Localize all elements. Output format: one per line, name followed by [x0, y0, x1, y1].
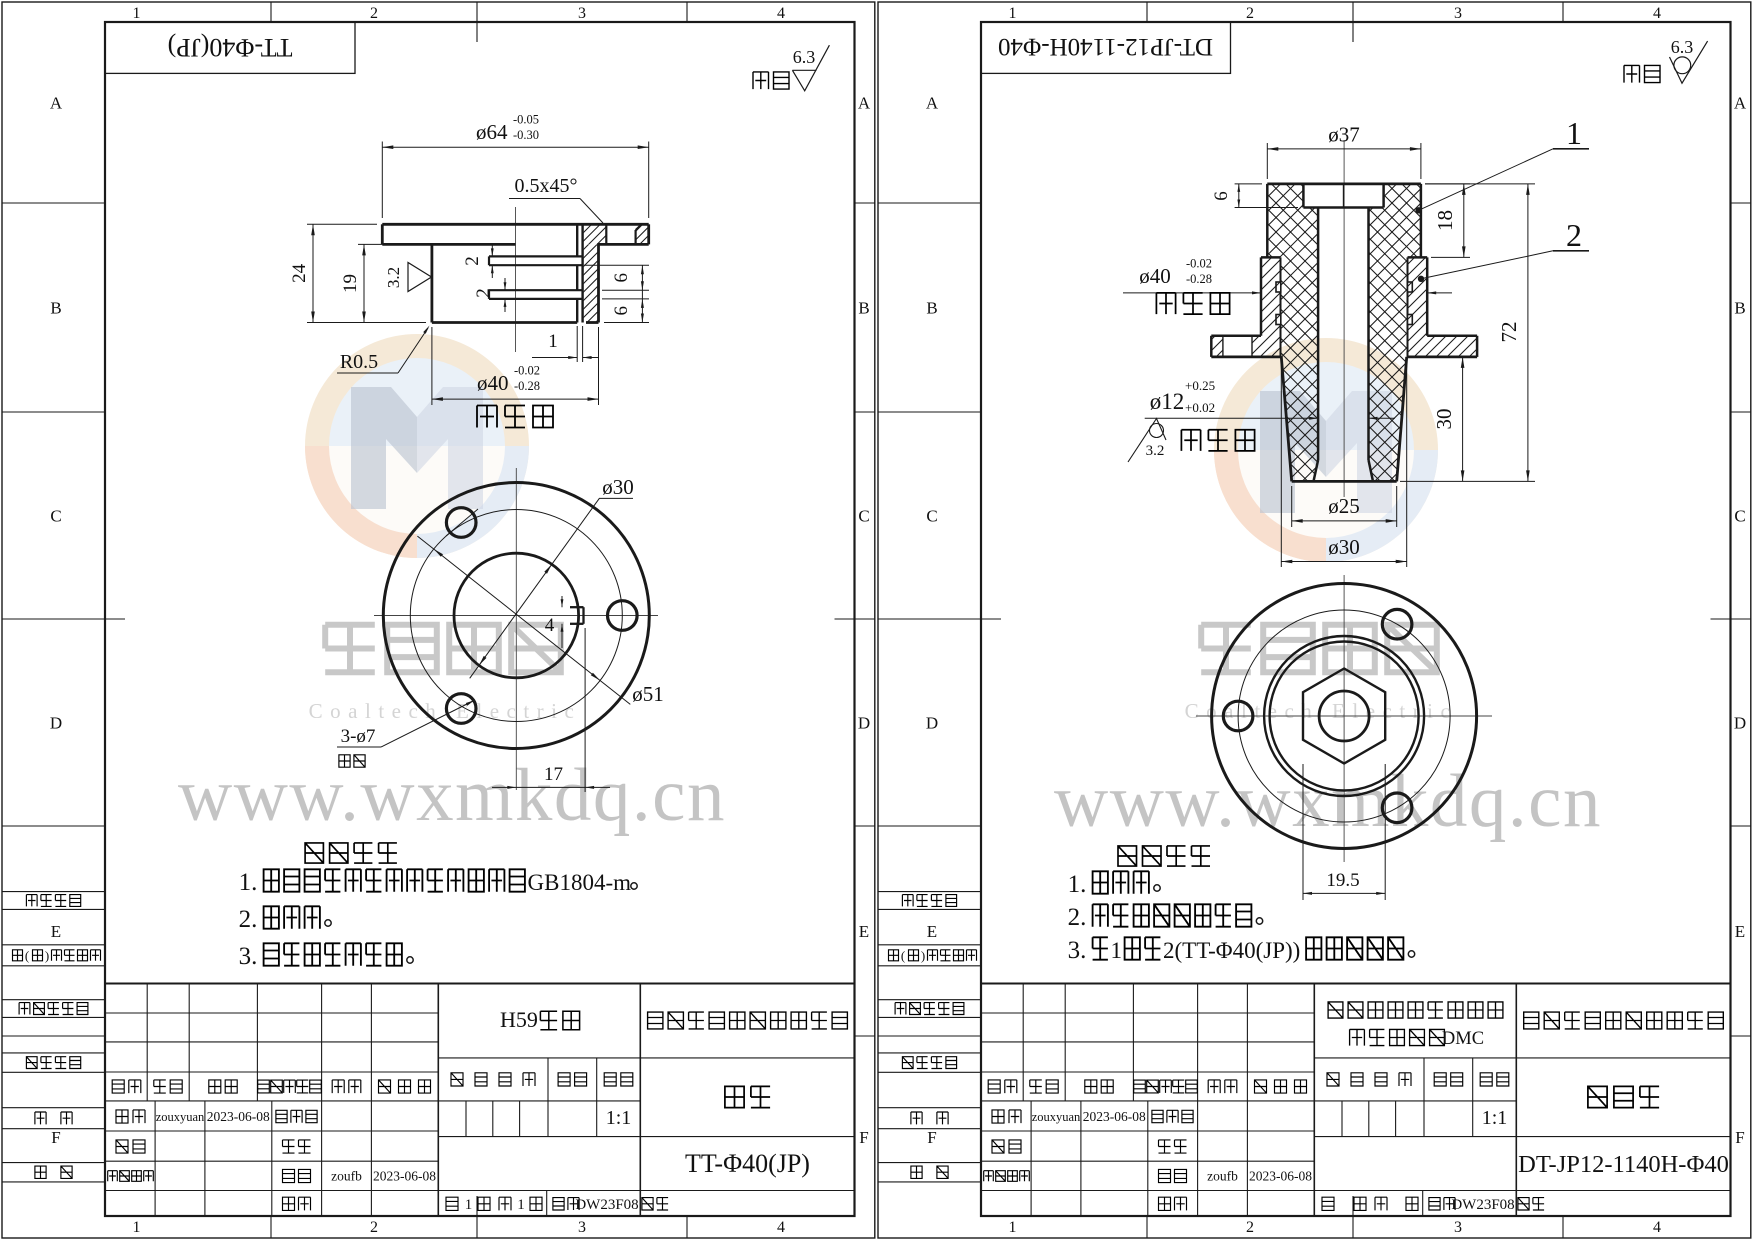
svg-text:1: 1 [1009, 5, 1017, 22]
svg-text:E: E [859, 922, 869, 941]
svg-text:ø30: ø30 [1328, 535, 1360, 559]
svg-text:zoufb: zoufb [1207, 1169, 1238, 1184]
svg-text:6.3: 6.3 [793, 47, 816, 67]
svg-text:19.5: 19.5 [1326, 870, 1359, 891]
svg-text:B: B [50, 299, 61, 318]
svg-text:): ) [921, 948, 925, 963]
svg-text:1: 1 [1009, 1219, 1017, 1236]
svg-text:C: C [1734, 507, 1745, 526]
svg-text:19: 19 [340, 274, 361, 293]
svg-text:(: ( [25, 948, 29, 963]
svg-text:+0.25: +0.25 [1185, 378, 1215, 393]
svg-text:4: 4 [1653, 1219, 1661, 1236]
svg-text:3.2: 3.2 [384, 267, 403, 288]
svg-text:1: 1 [1111, 938, 1123, 963]
svg-text:F: F [1735, 1128, 1744, 1147]
svg-text:6: 6 [611, 273, 632, 283]
svg-text:2023-06-08: 2023-06-08 [207, 1109, 270, 1124]
svg-text:17: 17 [544, 764, 563, 785]
svg-text:2023-06-08: 2023-06-08 [1249, 1169, 1312, 1184]
svg-text:1:1: 1:1 [606, 1107, 632, 1129]
svg-text:4: 4 [545, 615, 555, 636]
svg-text:R0.5: R0.5 [340, 351, 378, 373]
svg-text:DW23F08: DW23F08 [575, 1197, 638, 1213]
svg-text:-0.28: -0.28 [514, 379, 540, 393]
svg-text:+0.02: +0.02 [1185, 400, 1215, 415]
svg-text:ø51: ø51 [632, 682, 664, 706]
svg-text:A: A [858, 94, 871, 113]
svg-text:4: 4 [777, 5, 785, 22]
svg-text:1.: 1. [239, 869, 258, 896]
svg-text:C: C [858, 507, 869, 526]
svg-text:D: D [1734, 714, 1746, 733]
svg-text:F: F [927, 1128, 936, 1147]
svg-text:2023-06-08: 2023-06-08 [1083, 1109, 1146, 1124]
svg-text:18: 18 [1433, 210, 1457, 231]
svg-text:2: 2 [1566, 217, 1582, 253]
svg-text:A: A [926, 94, 939, 113]
svg-text:E: E [927, 922, 937, 941]
svg-text:C: C [926, 507, 937, 526]
svg-text:2: 2 [462, 256, 483, 266]
svg-text:6: 6 [611, 306, 632, 316]
svg-text:4: 4 [1653, 5, 1661, 22]
svg-text:-0.02: -0.02 [514, 364, 540, 378]
svg-text:1: 1 [1566, 115, 1582, 151]
svg-text:D: D [50, 714, 62, 733]
svg-text:1: 1 [465, 1197, 473, 1213]
svg-text:DW23F08: DW23F08 [1451, 1197, 1514, 1213]
svg-text:): ) [45, 948, 49, 963]
svg-text:B: B [926, 299, 937, 318]
svg-text:D: D [858, 714, 870, 733]
svg-text:GB1804-m: GB1804-m [528, 870, 632, 895]
svg-text:ø12: ø12 [1150, 389, 1185, 414]
svg-text:2023-06-08: 2023-06-08 [373, 1169, 436, 1184]
svg-text:(: ( [901, 948, 905, 963]
svg-text:H59: H59 [500, 1007, 538, 1032]
svg-text:1: 1 [133, 5, 141, 22]
svg-text:D: D [926, 714, 938, 733]
svg-text:E: E [51, 922, 61, 941]
svg-text:www.wxmkdq.cn: www.wxmkdq.cn [178, 754, 726, 837]
svg-text:ø30: ø30 [602, 475, 634, 499]
svg-text:DMC: DMC [1442, 1029, 1484, 1049]
svg-text:3: 3 [578, 1219, 586, 1236]
svg-text:A: A [50, 94, 63, 113]
svg-text:1.: 1. [1068, 871, 1087, 898]
svg-text:1: 1 [133, 1219, 141, 1236]
svg-text:A: A [1734, 94, 1747, 113]
svg-text:ø40: ø40 [477, 371, 509, 395]
svg-text:3: 3 [1454, 1219, 1462, 1236]
svg-text:ø25: ø25 [1328, 494, 1360, 518]
svg-text:F: F [859, 1128, 868, 1147]
svg-text:3.: 3. [239, 943, 258, 970]
svg-text:TT-Φ40(JP): TT-Φ40(JP) [685, 1149, 810, 1178]
svg-text:-0.28: -0.28 [1186, 272, 1212, 286]
svg-text:TT-Φ40(JP): TT-Φ40(JP) [168, 33, 293, 62]
svg-text:6: 6 [1211, 191, 1232, 201]
svg-text:2: 2 [370, 5, 378, 22]
svg-text:-0.30: -0.30 [513, 128, 539, 142]
svg-text:72: 72 [1497, 322, 1521, 343]
svg-text:DT-JP12-1140H-Φ40: DT-JP12-1140H-Φ40 [998, 33, 1213, 60]
svg-text:1:1: 1:1 [1482, 1107, 1508, 1129]
svg-text:3-ø7: 3-ø7 [341, 726, 376, 747]
svg-text:4: 4 [777, 1219, 785, 1236]
svg-text:2.: 2. [239, 906, 258, 933]
svg-text:www.wxmkdq.cn: www.wxmkdq.cn [1054, 760, 1602, 843]
svg-text:zouxyuan: zouxyuan [1032, 1110, 1081, 1124]
svg-text:0.5x45°: 0.5x45° [515, 175, 578, 197]
svg-text:C: C [50, 507, 61, 526]
svg-text:2: 2 [473, 288, 494, 298]
svg-text:24: 24 [289, 263, 310, 283]
svg-text:30: 30 [1432, 409, 1456, 430]
svg-text:E: E [1735, 922, 1745, 941]
svg-text:zouxyuan: zouxyuan [156, 1110, 205, 1124]
svg-text:3: 3 [1454, 5, 1462, 22]
svg-text:ø64: ø64 [476, 120, 508, 144]
svg-text:3.: 3. [1068, 937, 1087, 964]
svg-text:2.: 2. [1068, 904, 1087, 931]
svg-text:6.3: 6.3 [1671, 37, 1694, 57]
svg-text:ø37: ø37 [1328, 123, 1360, 147]
svg-text:ø40: ø40 [1139, 264, 1171, 288]
svg-text:2(TT-Φ40(JP)): 2(TT-Φ40(JP)) [1163, 938, 1300, 963]
svg-text:zoufb: zoufb [331, 1169, 362, 1184]
svg-text:B: B [858, 299, 869, 318]
svg-text:2: 2 [1246, 1219, 1254, 1236]
svg-text:B: B [1734, 299, 1745, 318]
svg-text:DT-JP12-1140H-Φ40: DT-JP12-1140H-Φ40 [1518, 1151, 1729, 1178]
svg-text:1: 1 [517, 1197, 525, 1213]
svg-text:F: F [51, 1128, 60, 1147]
svg-text:2: 2 [1246, 5, 1254, 22]
svg-text:-0.05: -0.05 [513, 113, 539, 127]
svg-text:1: 1 [548, 331, 558, 352]
svg-text:2: 2 [370, 1219, 378, 1236]
svg-text:-0.02: -0.02 [1186, 257, 1212, 271]
svg-text:3: 3 [578, 5, 586, 22]
svg-text:3.2: 3.2 [1146, 443, 1165, 459]
